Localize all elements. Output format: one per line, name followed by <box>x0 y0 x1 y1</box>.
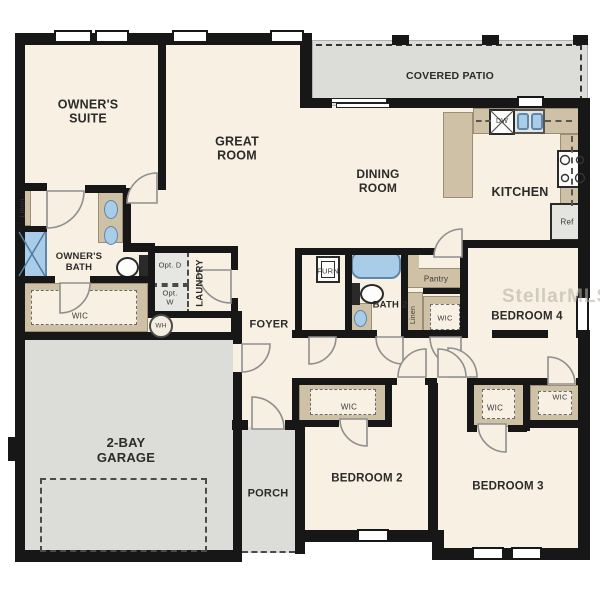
wall <box>231 246 238 270</box>
wall <box>345 248 352 333</box>
room-label-laundry: LAUNDRY <box>196 259 207 307</box>
room-label-foyer: FOYER <box>250 319 289 332</box>
wall <box>15 276 55 283</box>
wall <box>368 420 392 427</box>
wall <box>541 548 590 560</box>
bathtub-icon <box>351 251 401 279</box>
wall <box>123 188 131 245</box>
upper-cabinet-line <box>571 136 573 206</box>
label-optional-washer: Opt. W <box>158 289 182 306</box>
wall <box>15 226 47 232</box>
wall <box>528 420 590 428</box>
wall <box>155 246 238 253</box>
wall <box>299 420 339 427</box>
kitchen-island <box>443 112 473 198</box>
label-linen-hall: Linen <box>410 306 418 324</box>
wall <box>300 38 312 106</box>
room-label-owners-bath: OWNER'S BATH <box>43 252 115 274</box>
label-linen-owner: Linen <box>19 198 28 217</box>
wall <box>15 33 25 562</box>
wall <box>460 240 590 248</box>
room-label-owners-suite: OWNER'S SUITE <box>38 98 138 127</box>
upper-cabinet-line <box>476 120 491 122</box>
label-optional-dryer: Opt. D <box>158 262 182 271</box>
wall <box>403 330 462 338</box>
label-wic-bedroom-2: WIC <box>341 402 357 411</box>
window <box>357 529 389 542</box>
floor-plan: OWNER'S SUITE GREAT ROOM COVERED PATIO D… <box>0 0 600 600</box>
wall <box>467 383 474 431</box>
wall <box>15 332 233 340</box>
label-wic-bedroom-4: WIC <box>552 394 567 403</box>
label-furnace: FURN <box>317 268 339 277</box>
patio-post <box>392 35 409 45</box>
window <box>472 547 504 560</box>
wall <box>295 248 302 338</box>
wall <box>233 311 242 344</box>
room-label-garage: 2-BAY GARAGE <box>76 436 176 466</box>
wall <box>440 548 474 560</box>
label-dishwasher: DW <box>496 118 508 126</box>
label-pantry: Pantry <box>424 274 448 283</box>
wall <box>233 427 242 552</box>
sink-basin-icon <box>531 113 543 130</box>
wall <box>292 330 377 338</box>
wall <box>492 330 548 338</box>
wall <box>295 530 359 542</box>
wall <box>578 98 590 298</box>
wall <box>385 378 392 426</box>
wall <box>467 425 477 432</box>
window <box>54 30 92 43</box>
patio-post <box>573 35 588 45</box>
room-label-covered-patio: COVERED PATIO <box>405 70 495 82</box>
wall <box>576 378 590 385</box>
wall <box>428 383 438 535</box>
porch-edge-line <box>242 548 295 553</box>
label-refrigerator: Ref <box>560 217 573 226</box>
wall <box>386 98 517 108</box>
room-label-bedroom-2: BEDROOM 2 <box>331 472 402 485</box>
sliding-glass-door <box>336 103 390 108</box>
toilet-icon <box>352 283 360 305</box>
room-label-great-room: GREAT ROOM <box>197 135 277 164</box>
label-wic-owner: WIC <box>72 311 88 320</box>
wall <box>401 248 408 338</box>
toilet-icon <box>116 257 139 278</box>
window <box>511 547 542 560</box>
wall <box>85 185 126 193</box>
room-label-porch: PORCH <box>248 488 289 501</box>
wall <box>90 276 148 283</box>
sink-basin-icon <box>517 113 529 130</box>
wall <box>423 288 467 294</box>
window <box>270 30 304 43</box>
room-label-bath-2: BATH 2 <box>369 301 411 312</box>
window <box>517 96 544 108</box>
wall <box>300 98 332 108</box>
room-label-kitchen: KITCHEN <box>492 185 549 199</box>
wall <box>233 372 242 427</box>
room-label-bedroom-3: BEDROOM 3 <box>472 480 543 493</box>
wall <box>292 378 299 428</box>
bath2-sink-icon <box>354 310 367 327</box>
label-wic-bedroom-3: WIC <box>487 403 503 412</box>
vanity-sink-icon <box>104 200 118 219</box>
wall <box>158 40 166 190</box>
room-label-dining-room: DINING ROOM <box>338 168 418 196</box>
wall <box>578 330 590 560</box>
room-label-bedroom-4: BEDROOM 4 <box>491 310 562 323</box>
window <box>95 30 129 43</box>
patio-post <box>482 35 499 45</box>
vanity-sink-icon <box>104 226 118 245</box>
wall <box>508 425 527 432</box>
garage-door-outline <box>40 478 207 552</box>
wall <box>15 183 47 191</box>
wall <box>232 420 248 430</box>
pantry-shelf-side <box>407 255 419 270</box>
upper-cabinet-line <box>545 120 572 122</box>
stellar-mls-watermark: StellarMLS <box>502 286 600 308</box>
label-wic-hall: WIC <box>437 315 452 324</box>
wall <box>292 378 397 385</box>
label-water-heater: WH <box>155 322 166 329</box>
wall <box>467 378 528 385</box>
wall <box>148 243 155 318</box>
wall <box>407 248 435 255</box>
window <box>172 30 208 43</box>
wall <box>8 437 17 461</box>
